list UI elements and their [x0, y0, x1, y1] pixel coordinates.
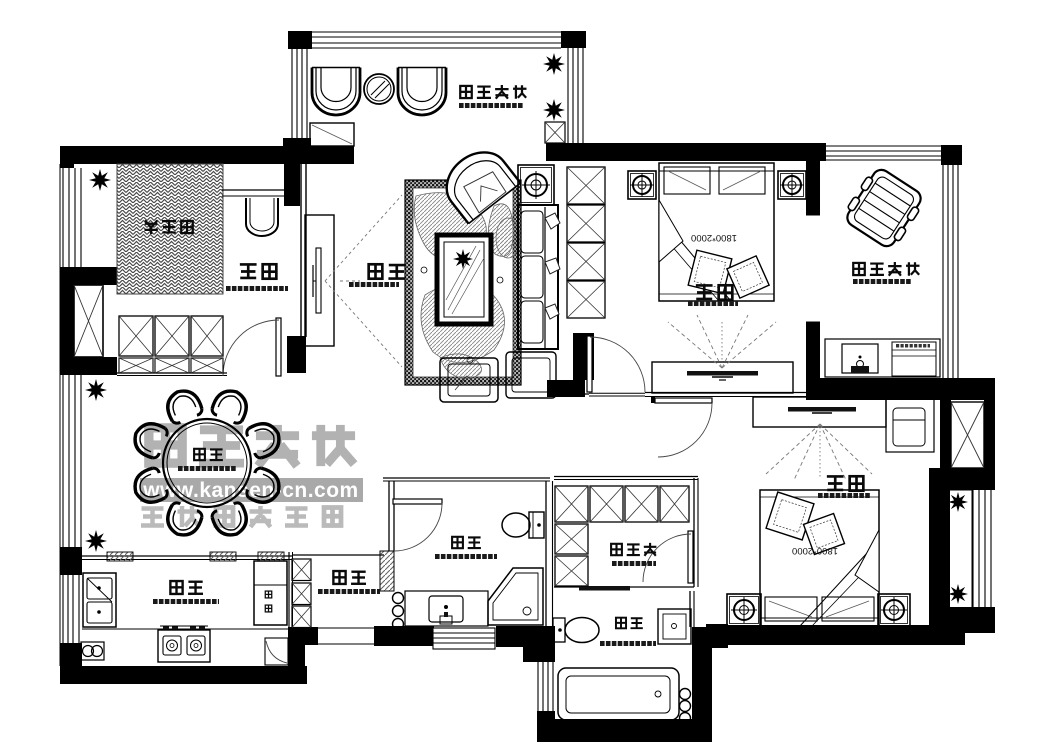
svg-text:1800*2000: 1800*2000 — [691, 232, 737, 243]
svg-text:1800*2000: 1800*2000 — [792, 545, 838, 556]
